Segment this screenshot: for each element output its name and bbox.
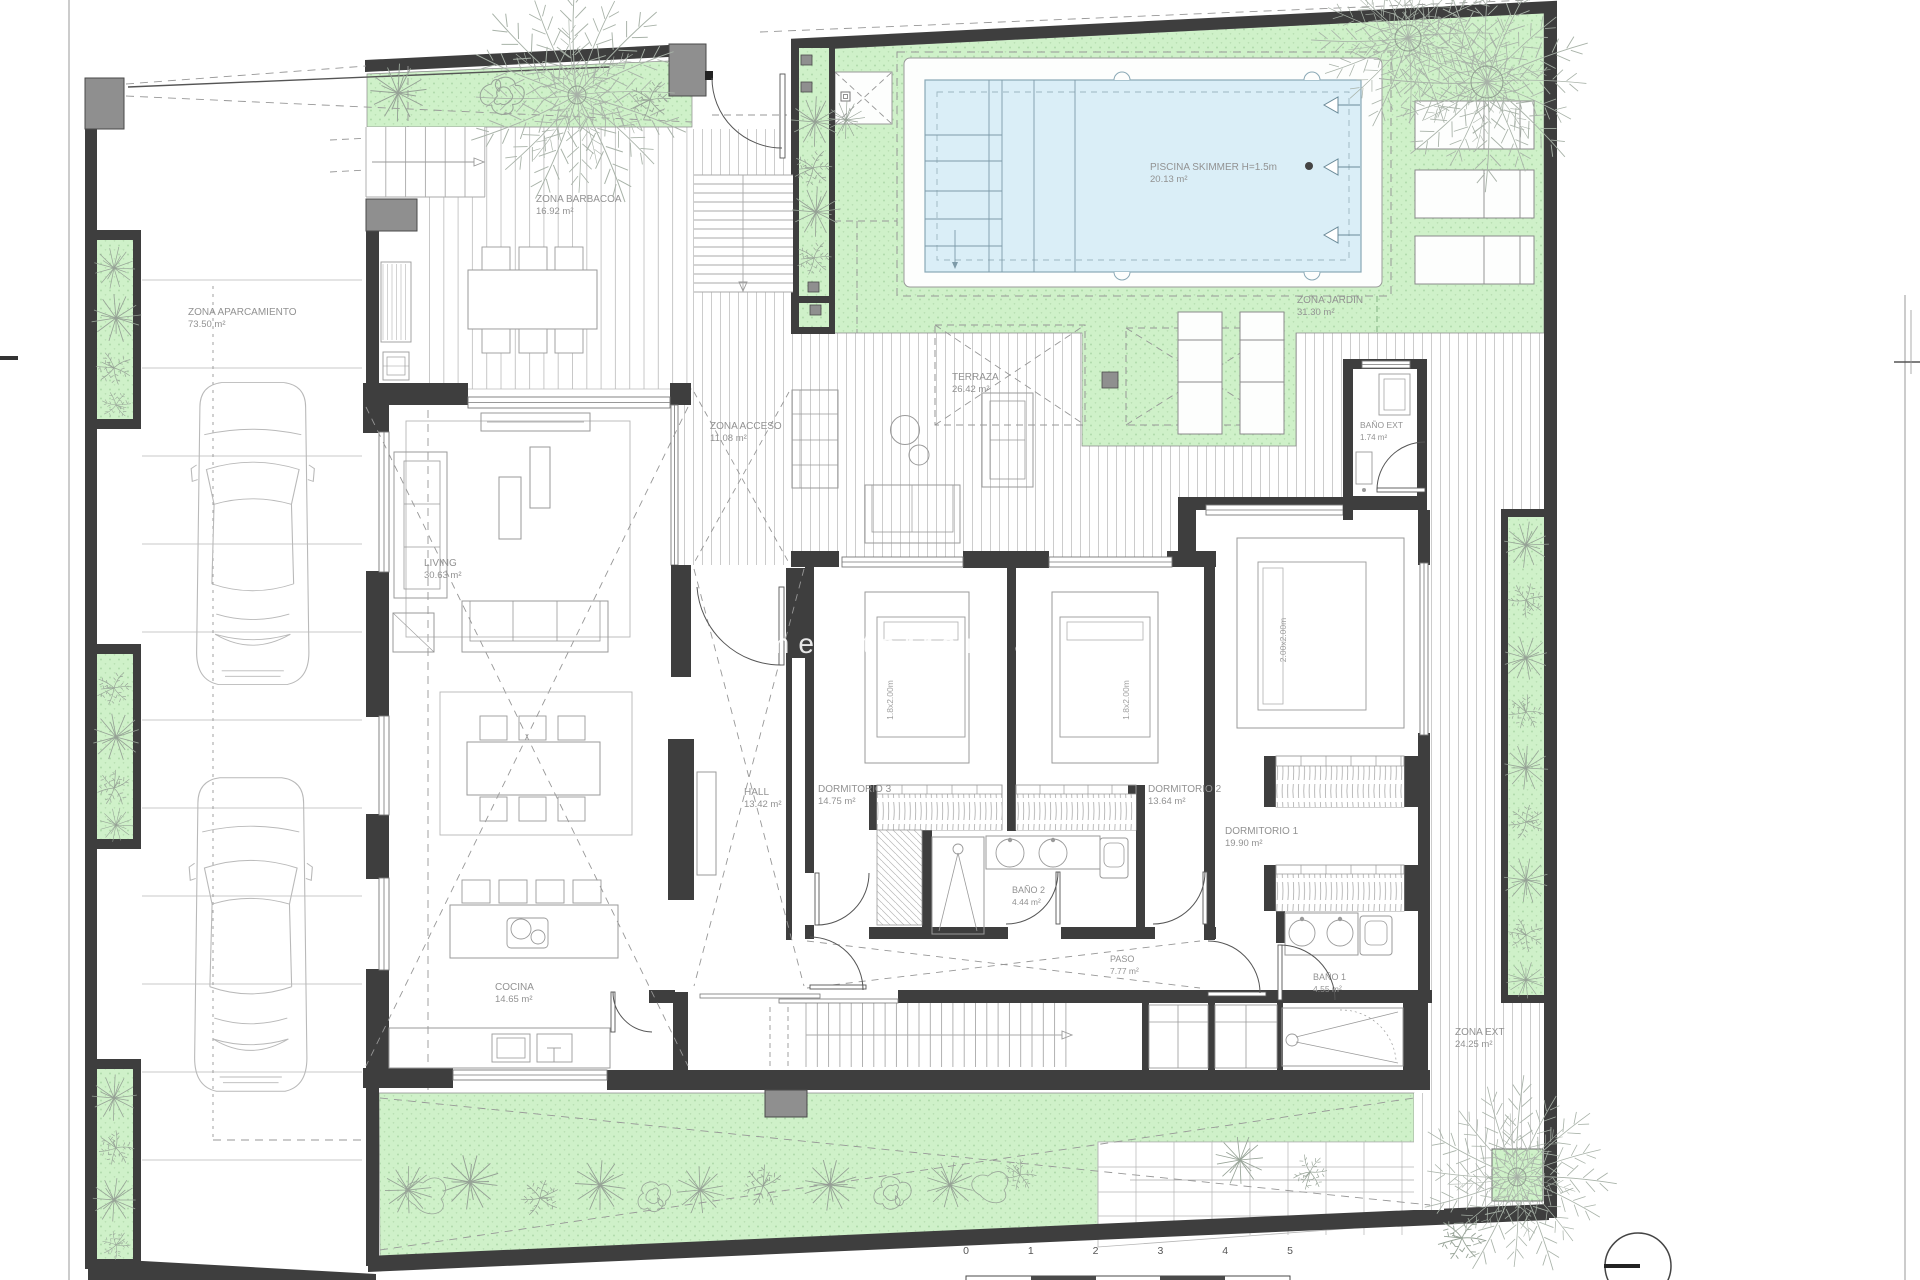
svg-text:DORMITORIO 2: DORMITORIO 2	[1148, 784, 1222, 795]
svg-text:ZONA JARDIN: ZONA JARDIN	[1297, 295, 1363, 306]
svg-text:20.13 m²: 20.13 m²	[1150, 174, 1188, 185]
svg-text:4: 4	[1222, 1245, 1228, 1257]
svg-text:11.08 m²: 11.08 m²	[710, 433, 747, 444]
svg-text:PISCINA SKIMMER H=1.5m: PISCINA SKIMMER H=1.5m	[1150, 162, 1277, 173]
svg-text:13.64 m²: 13.64 m²	[1148, 796, 1186, 807]
svg-text:BAÑO EXT: BAÑO EXT	[1360, 420, 1403, 430]
svg-text:PASO: PASO	[1110, 954, 1134, 964]
svg-text:2.00x2.00m: 2.00x2.00m	[1278, 618, 1288, 662]
svg-text:HALL: HALL	[744, 787, 769, 798]
svg-text:30.63 m²: 30.63 m²	[424, 570, 462, 581]
svg-text:3: 3	[1157, 1245, 1163, 1257]
svg-text:4.55 m²: 4.55 m²	[1313, 984, 1342, 994]
svg-text:1.8x2.00m: 1.8x2.00m	[1121, 680, 1131, 720]
svg-text:73.50 m²: 73.50 m²	[188, 319, 226, 330]
svg-text:4.44 m²: 4.44 m²	[1012, 897, 1041, 907]
svg-text:13.42 m²: 13.42 m²	[744, 799, 782, 810]
svg-text:0: 0	[963, 1245, 969, 1257]
svg-text:16.92 m²: 16.92 m²	[536, 206, 574, 217]
svg-text:COCINA: COCINA	[495, 982, 534, 993]
svg-text:7.77 m²: 7.77 m²	[1110, 966, 1139, 976]
svg-text:1: 1	[1028, 1245, 1034, 1257]
svg-text:31.30 m²: 31.30 m²	[1297, 307, 1335, 318]
svg-text:14.65 m²: 14.65 m²	[495, 994, 533, 1005]
svg-text:ZONA BARBACOA: ZONA BARBACOA	[536, 194, 622, 205]
svg-text:ZONA APARCAMIENTO: ZONA APARCAMIENTO	[188, 307, 297, 318]
svg-text:19.90 m²: 19.90 m²	[1225, 838, 1263, 849]
svg-text:BAÑO 2: BAÑO 2	[1012, 885, 1045, 895]
svg-text:BAÑO 1: BAÑO 1	[1313, 972, 1346, 982]
svg-text:14.75 m²: 14.75 m²	[818, 796, 856, 807]
svg-text:1.8x2.00m: 1.8x2.00m	[885, 680, 895, 720]
svg-text:DORMITORIO 3: DORMITORIO 3	[818, 784, 892, 795]
svg-text:TERRAZA: TERRAZA	[952, 372, 999, 383]
svg-text:ZONA EXT: ZONA EXT	[1455, 1027, 1504, 1038]
svg-text:DORMITORIO 1: DORMITORIO 1	[1225, 826, 1299, 837]
svg-text:1.74 m²: 1.74 m²	[1360, 433, 1387, 442]
svg-text:26.42 m²: 26.42 m²	[952, 384, 990, 395]
svg-text:2: 2	[1093, 1245, 1099, 1257]
svg-text:ZONA ACCESO: ZONA ACCESO	[710, 421, 782, 432]
svg-text:mediterranea: mediterranea	[766, 628, 1039, 659]
svg-text:24.25 m²: 24.25 m²	[1455, 1039, 1493, 1050]
svg-text:5: 5	[1287, 1245, 1293, 1257]
